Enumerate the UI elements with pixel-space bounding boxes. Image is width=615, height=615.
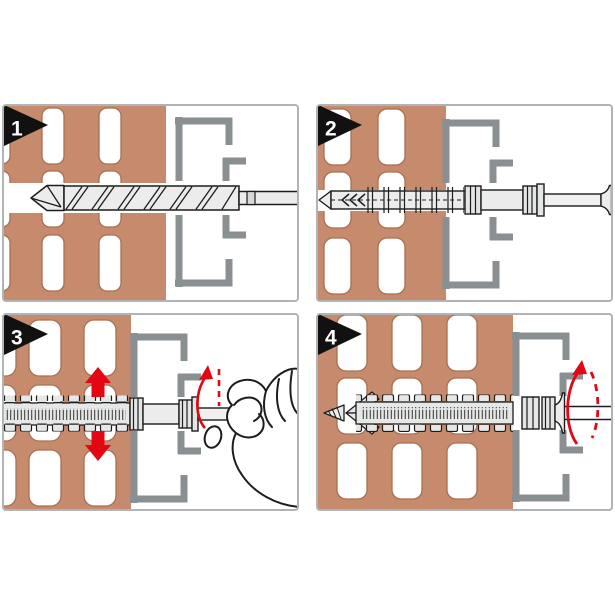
step-1-panel: 1	[0, 104, 298, 302]
step-number: 3	[11, 327, 23, 350]
instruction-figure: 1	[0, 0, 615, 615]
step-2-panel: 2	[316, 104, 612, 302]
step-number: 1	[11, 118, 23, 141]
step-4-panel: 4	[316, 313, 612, 511]
step-3-panel: 3	[0, 313, 299, 511]
instruction-sheet: 1	[0, 0, 615, 615]
step-number: 2	[325, 118, 337, 141]
step-number: 4	[325, 327, 337, 350]
